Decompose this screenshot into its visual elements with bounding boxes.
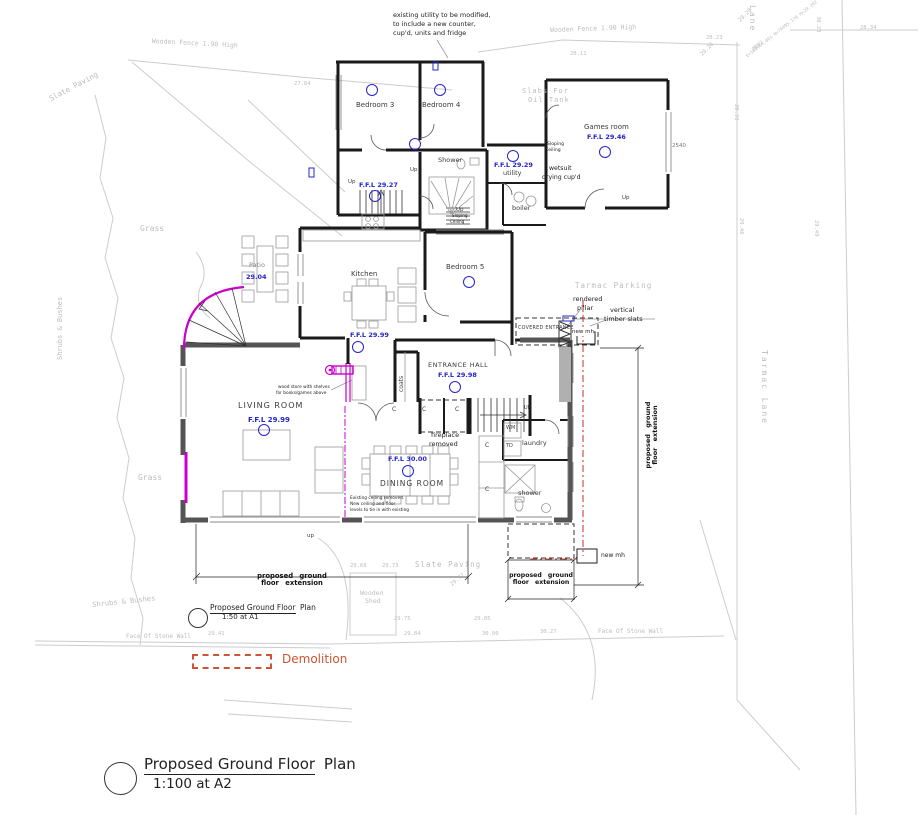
main-title-bubble — [104, 762, 137, 795]
ffl-entrance: F.F.L 29.98 — [438, 372, 477, 379]
spot-level: 30.00 — [482, 632, 499, 638]
shrubs-label-left: Shrubs & Bushes — [57, 297, 64, 360]
spot-level: 28.31 — [732, 104, 738, 121]
fireplace-note-line2: removed — [429, 441, 458, 448]
room-label-kitchen: Kitchen — [351, 271, 377, 278]
sloping-ceiling-centre-2: Ceiling — [450, 220, 464, 224]
up-label-stair: UP — [524, 406, 531, 411]
spot-level: 30.27 — [540, 630, 557, 636]
manhole-boxes — [577, 332, 597, 563]
ffl-kitchen: F.F.L 29.99 — [350, 332, 389, 339]
slabs-oil-tank-label-1: Slabs For — [522, 88, 569, 95]
room-label-bedroom4: Bedroom 4 — [422, 102, 460, 109]
utility-note-line1: existing utility to be modified, — [393, 12, 490, 19]
room-label-living: LIVING ROOM — [238, 402, 303, 410]
ceiling-note-1: Existing ceiling removed. — [350, 497, 404, 502]
slabs-oil-tank-label-2: Oil Tank — [528, 97, 570, 104]
new-walls — [300, 62, 668, 436]
grass-label-upper: Grass — [140, 225, 164, 233]
wooden-shed-label-1: Wooden — [360, 590, 383, 597]
ceiling-note-3: levels to tie in with existing — [350, 509, 409, 514]
spot-level: 29.41 — [208, 632, 225, 638]
stone-wall-label-left: Face Of Stone Wall — [126, 634, 191, 640]
fireplace-note-line1: fireplace — [431, 432, 459, 439]
utility-note-line3: cup'd, units and fridge — [393, 30, 466, 37]
room-label-games: Games room — [584, 124, 629, 131]
wetsuit-note-line1: wetsuit — [549, 166, 572, 173]
room-label-dining: DINING ROOM — [380, 480, 444, 488]
grass-label-lower: Grass — [138, 474, 162, 482]
spot-level: 29.75 — [394, 617, 411, 623]
room-label-utility: utility — [503, 170, 521, 177]
spot-level: 29.68 — [350, 564, 367, 570]
cupboard-label: C — [485, 487, 489, 493]
wm-label: WM — [506, 426, 515, 431]
up-label: Up — [410, 168, 418, 174]
ffl-dining: F.F.L 30.00 — [388, 456, 427, 463]
up-label-lower: up — [307, 534, 314, 540]
slate-paving-label-bottom: Slate Paving — [415, 561, 481, 569]
room-label-laundry: laundry — [522, 440, 547, 447]
room-label-entrance-hall: ENTRANCE HALL — [428, 362, 488, 369]
spot-level: 29.84 — [404, 632, 421, 638]
rendered-pillar-note-1: rendered — [573, 296, 602, 303]
stairs — [360, 190, 526, 432]
room-label-shower-bottom: shower — [518, 490, 541, 497]
utility-note-line2: to include a new counter, — [393, 21, 476, 28]
main-title-scale: 1:100 at A2 — [153, 777, 232, 791]
ffl-utility: F.F.L 29.29 — [494, 162, 533, 169]
main-title-text: Proposed Ground Floor — [144, 755, 315, 775]
room-label-bedroom3: Bedroom 3 — [356, 102, 394, 109]
extension-label-bottom: proposed ground floor extension — [505, 573, 577, 586]
inset-title-tail: Plan — [300, 603, 316, 612]
room-label-coats: coats — [399, 376, 405, 392]
wooden-shed-label-2: Shed — [365, 598, 381, 605]
spot-level: 28.11 — [570, 52, 587, 58]
ffl-living: F.F.L 29.99 — [248, 417, 290, 424]
wood-store-note-2: for books/games above — [276, 392, 326, 397]
pillar-hatch — [559, 321, 571, 402]
wetsuit-note-line2: drying cup'd — [542, 175, 581, 182]
new-mh-label-right: new mh — [572, 330, 594, 336]
spot-level: 29.46 — [737, 218, 743, 235]
room-label-bedroom5: Bedroom 5 — [446, 264, 484, 271]
stone-wall-label-right: Face Of Stone Wall — [598, 629, 663, 635]
room-label-patio: Patio — [249, 262, 265, 269]
survey-linework — [35, 0, 918, 815]
inset-title-bubble — [188, 608, 208, 628]
tarmac-parking-label: Tarmac Parking — [575, 282, 652, 290]
timber-slats-note-2: timber slats — [604, 316, 643, 323]
td-label: TD — [506, 444, 513, 449]
inset-title: Proposed Ground Floor Plan — [210, 604, 316, 612]
patio-level: 29.04 — [246, 274, 267, 281]
spot-level: 29.85 — [474, 617, 491, 623]
extension-label-line2: floor extension — [652, 392, 659, 478]
sloping-ceiling-games-2: Ceiling — [545, 149, 561, 154]
spot-level: 29.49 — [812, 220, 818, 237]
tarmac-lane-label: Tarmac Lane — [760, 350, 768, 425]
main-title-tail: Plan — [324, 755, 356, 773]
cupboard-label: C — [392, 407, 396, 413]
wood-store-note-1: wood store with shelves — [278, 386, 330, 391]
up-label: Up — [622, 196, 630, 202]
extension-label-line2: floor extension — [505, 580, 577, 587]
rendered-pillar-note-2: pillar — [577, 305, 593, 312]
room-label-boiler: boiler — [512, 205, 530, 212]
extension-label-line2: floor extension — [232, 580, 352, 587]
demolition-legend-swatch — [192, 654, 272, 669]
floor-plan-canvas — [0, 0, 920, 815]
extension-label-right: proposed ground floor extension — [645, 392, 659, 478]
spot-level: 28.23 — [706, 36, 723, 42]
dim-2540: 2540 — [672, 144, 686, 150]
up-label: Up — [348, 180, 356, 186]
sloping-ceiling-centre-1: Sloping — [452, 214, 468, 218]
spot-level: 28.34 — [860, 26, 877, 32]
spot-level: 29.73 — [382, 564, 399, 570]
room-tags — [259, 62, 611, 477]
cupboard-label: C — [485, 443, 489, 449]
ffl-games: F.F.L 29.46 — [587, 134, 626, 141]
floor-plan-sheet: { "colors": { "ffl_blue": "#2424cc", "de… — [0, 0, 920, 815]
demolition-legend-label: Demolition — [282, 653, 347, 666]
timber-slats-note-1: vertical — [610, 307, 634, 314]
cupboard-label: C — [455, 407, 459, 413]
main-title: Proposed Ground Floor Plan — [144, 757, 356, 773]
new-mh-label-bottom: new mh — [601, 553, 625, 559]
inset-title-scale: 1:50 at A1 — [222, 614, 258, 621]
room-label-shower-top: Shower — [438, 157, 462, 164]
ffl-landing: F.F.L 29.27 — [359, 182, 398, 189]
spot-level: 27.84 — [294, 82, 311, 88]
ceiling-note-2: New ceiling and floor — [350, 503, 395, 508]
room-label-covered-entrance: COVERED ENTRANCE — [518, 326, 574, 331]
cupboard-label: C — [422, 407, 426, 413]
extension-label-left: proposed ground floor extension — [232, 573, 352, 587]
spot-level: 30.23 — [814, 16, 820, 33]
